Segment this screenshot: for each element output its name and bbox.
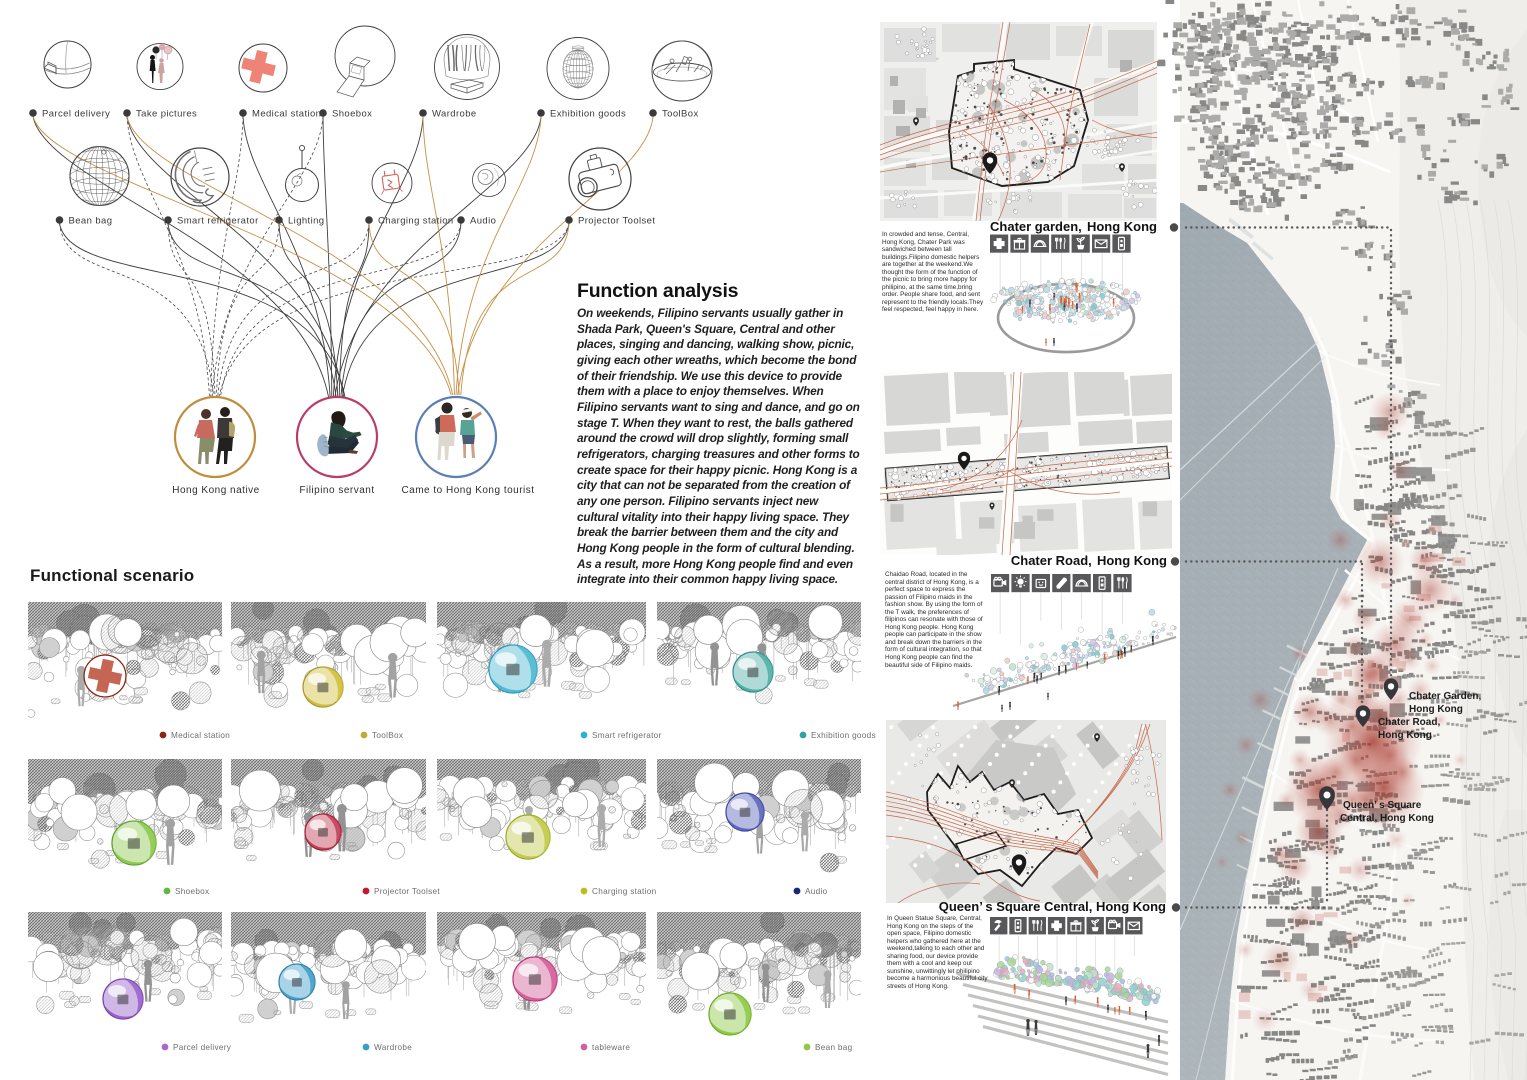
svg-text:Queen’ s Square: Queen’ s Square	[1343, 800, 1422, 811]
svg-text:Central, Hong Kong: Central, Hong Kong	[1340, 813, 1434, 824]
svg-text:Hong Kong: Hong Kong	[1409, 704, 1463, 715]
svg-text:Chater Road,: Chater Road,	[1378, 717, 1440, 728]
svg-text:Chater Garden,: Chater Garden,	[1409, 691, 1481, 702]
svg-text:Hong Kong: Hong Kong	[1378, 730, 1432, 741]
